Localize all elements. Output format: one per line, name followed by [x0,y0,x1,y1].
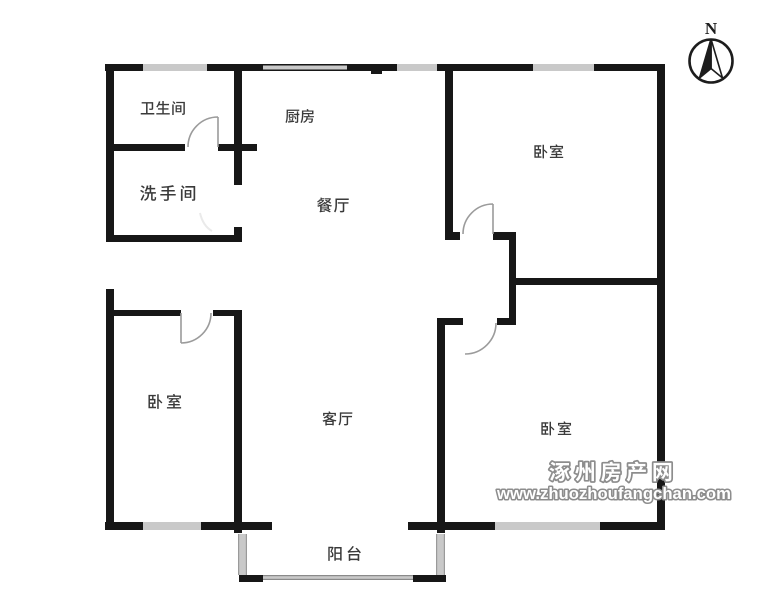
svg-text:N: N [705,19,718,38]
svg-text:www.zhuozhoufangchan.com: www.zhuozhoufangchan.com [496,484,731,503]
